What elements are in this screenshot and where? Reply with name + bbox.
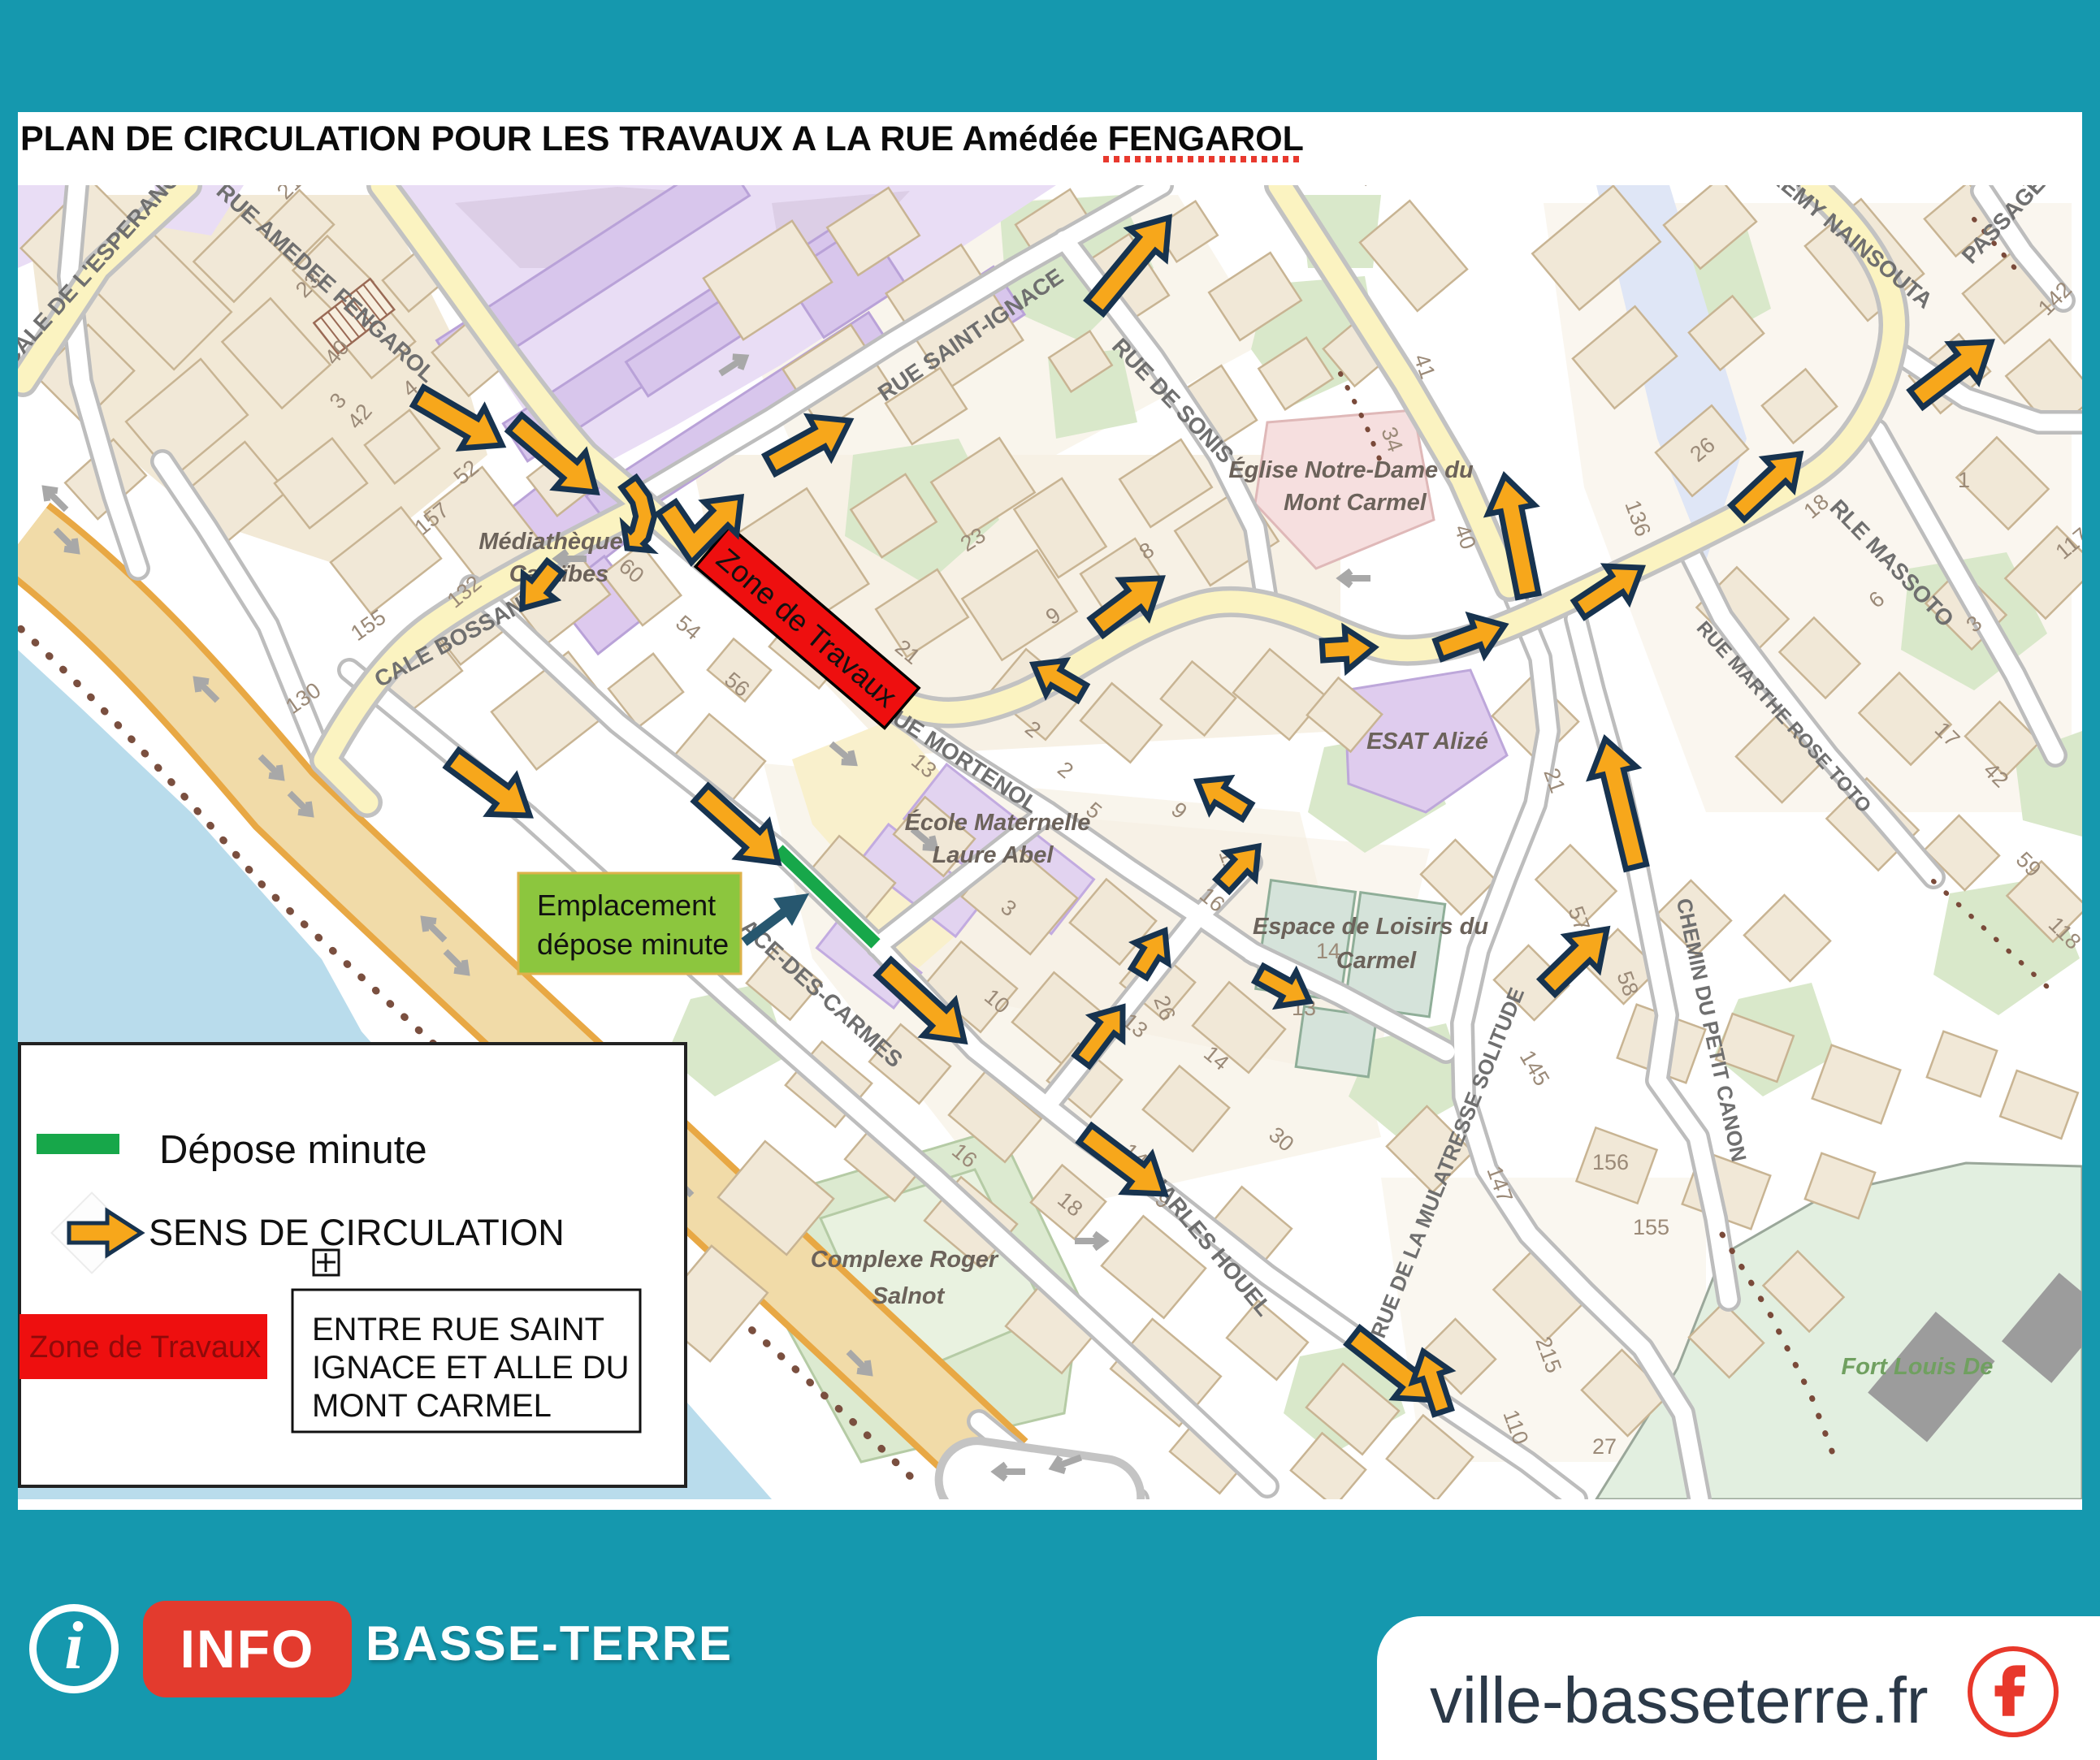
svg-text:IGNACE ET ALLE DU: IGNACE ET ALLE DU: [312, 1350, 630, 1386]
svg-text:155: 155: [1633, 1215, 1669, 1239]
svg-text:Espace de Loisirs du: Espace de Loisirs du: [1253, 914, 1488, 940]
svg-text:Laure Abel: Laure Abel: [933, 842, 1054, 868]
svg-text:Salnot: Salnot: [872, 1283, 946, 1309]
svg-text:MONT CARMEL: MONT CARMEL: [312, 1388, 552, 1424]
svg-text:Mont Carmel: Mont Carmel: [1284, 490, 1427, 516]
svg-text:École Maternelle: École Maternelle: [905, 809, 1091, 836]
svg-text:SENS DE CIRCULATION: SENS DE CIRCULATION: [149, 1212, 565, 1253]
svg-text:Dépose minute: Dépose minute: [159, 1128, 427, 1172]
svg-text:Église Notre-Dame du: Église Notre-Dame du: [1228, 456, 1474, 483]
svg-text:Fort Louis De: Fort Louis De: [1842, 1354, 1994, 1380]
svg-text:ENTRE RUE SAINT: ENTRE RUE SAINT: [312, 1312, 604, 1347]
svg-text:156: 156: [1592, 1150, 1629, 1174]
svg-text:Zone de Travaux: Zone de Travaux: [29, 1330, 261, 1364]
svg-text:Carmel: Carmel: [1336, 948, 1417, 974]
svg-text:Complexe Roger: Complexe Roger: [811, 1247, 999, 1273]
svg-text:1: 1: [1958, 468, 1970, 492]
svg-text:Emplacement: Emplacement: [537, 889, 716, 922]
svg-text:ESAT Alizé: ESAT Alizé: [1366, 729, 1488, 755]
svg-text:dépose minute: dépose minute: [537, 928, 729, 961]
svg-text:Médiathèque: Médiathèque: [478, 529, 622, 555]
svg-text:27: 27: [1592, 1434, 1617, 1459]
